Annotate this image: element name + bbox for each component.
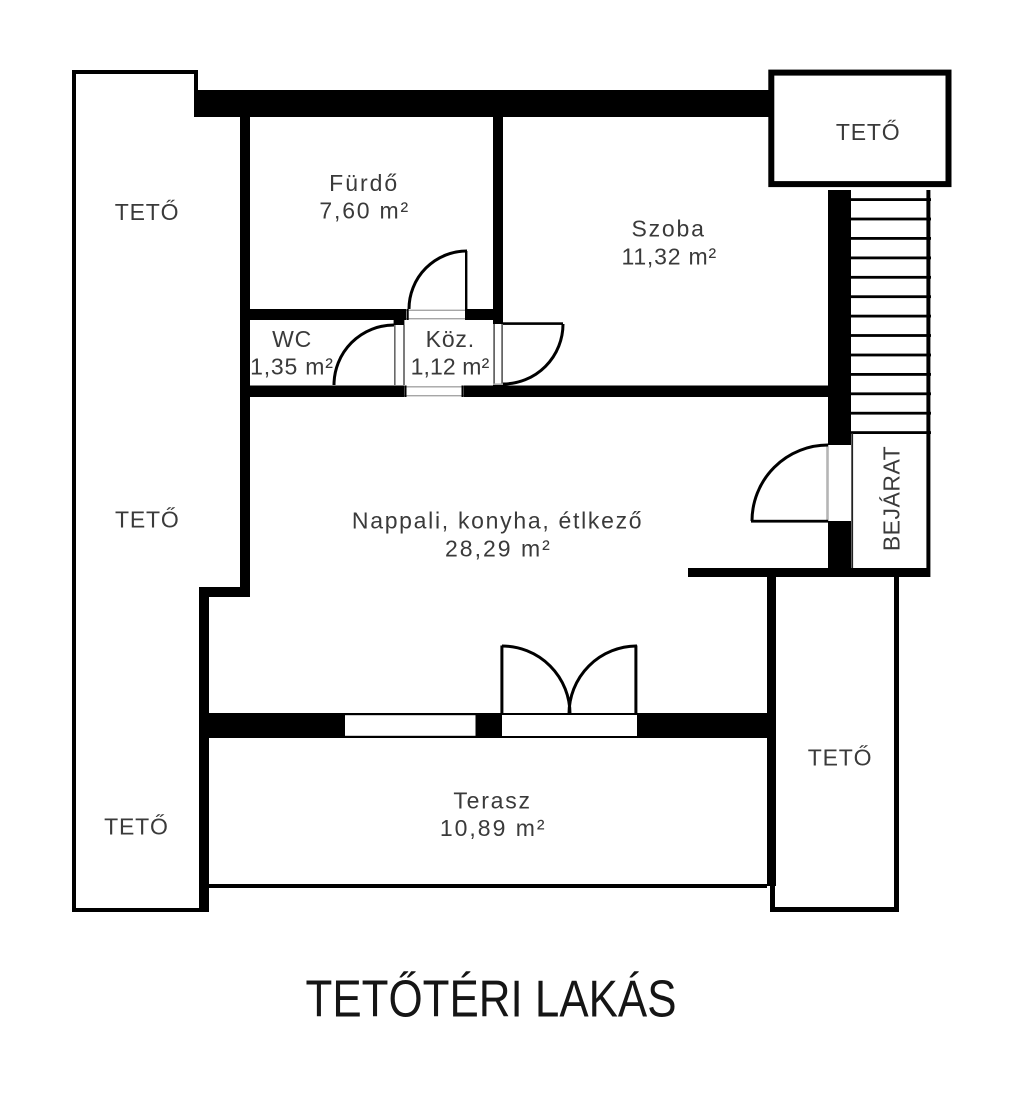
svg-text:TETŐ: TETŐ (115, 506, 180, 532)
svg-text:1,12 m²: 1,12 m² (411, 353, 490, 379)
svg-text:TETŐTÉRI LAKÁS: TETŐTÉRI LAKÁS (305, 970, 676, 1028)
svg-text:7,60 m²: 7,60 m² (319, 197, 410, 223)
svg-text:Terasz: Terasz (453, 788, 532, 814)
svg-text:Nappali, konyha, étlkező: Nappali, konyha, étlkező (352, 508, 643, 534)
svg-text:Fürdő: Fürdő (329, 170, 399, 196)
svg-text:TETŐ: TETŐ (104, 813, 169, 839)
svg-text:BEJÁRAT: BEJÁRAT (879, 446, 905, 551)
svg-text:TETŐ: TETŐ (115, 199, 180, 225)
svg-text:10,89 m²: 10,89 m² (440, 815, 547, 841)
svg-text:28,29 m²: 28,29 m² (445, 535, 552, 561)
svg-text:Köz.: Köz. (426, 326, 475, 352)
svg-text:WC: WC (272, 326, 312, 352)
svg-text:1,35 m²: 1,35 m² (250, 353, 334, 379)
svg-text:TETŐ: TETŐ (836, 119, 901, 145)
svg-text:11,32 m²: 11,32 m² (621, 244, 716, 270)
svg-text:Szoba: Szoba (631, 216, 705, 242)
svg-text:TETŐ: TETŐ (808, 745, 873, 771)
